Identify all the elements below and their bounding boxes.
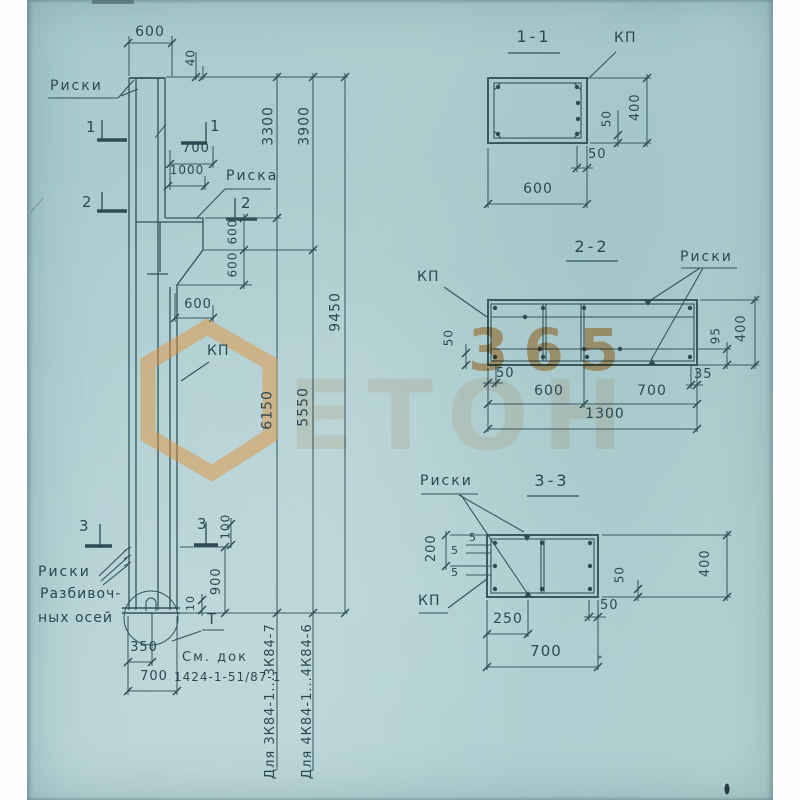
label-t-mark: Т [207, 611, 217, 628]
label-riska: Риска [226, 169, 278, 184]
dim-1-1-400: 400 [629, 95, 643, 121]
dim-900: 900 [210, 569, 224, 595]
section-marker-2-left: 2 [82, 194, 93, 211]
section-marker-3-right: 3 [197, 516, 208, 533]
section-3-3-drawing [419, 494, 731, 670]
dim-3-3-700: 700 [524, 643, 568, 660]
section-1-1-drawing [488, 52, 651, 208]
dim-2-2-50-bottom: 50 [496, 367, 515, 381]
dim-2-2-700: 700 [632, 384, 672, 399]
dim-9450: 9450 [328, 294, 343, 332]
dim-40: 40 [184, 48, 197, 68]
dim-2-2-400: 400 [735, 316, 749, 342]
dim-6150: 6150 [260, 394, 275, 430]
section-1-1-title: 1-1 [506, 28, 562, 46]
section-marker-1-left: 1 [86, 119, 97, 136]
dim-100: 100 [219, 516, 232, 540]
dim-2-2-50-left: 50 [442, 329, 455, 347]
dim-top-600: 600 [130, 25, 170, 40]
dim-1-1-50-bottom: 50 [588, 148, 607, 162]
dim-2-2-600: 600 [529, 384, 569, 399]
label-riski-2-2: Риски [680, 250, 733, 265]
note-for-3k84: Для 3К84-1...3К84-7 [264, 616, 278, 786]
dim-10: 10 [185, 595, 197, 611]
label-riski-top: Риски [50, 79, 103, 94]
dim-1-1-600: 600 [518, 182, 558, 197]
dim-350: 350 [126, 641, 162, 655]
dim-2-2-1300: 1300 [581, 407, 629, 422]
dim-corbel-600a: 600 [226, 219, 239, 245]
dim-1-1-50-inner: 50 [600, 110, 613, 128]
dim-700: 700 [176, 142, 216, 156]
label-kp-2-2: КП [417, 270, 439, 285]
dim-2-2-95: 95 [709, 327, 722, 345]
dim-3-3-5a: 5 [469, 532, 477, 544]
note-for-4k84: Для 4К84-1...4К84-6 [301, 616, 315, 786]
dim-3-3-50-right: 50 [613, 566, 626, 584]
dim-2-2-35: 35 [694, 368, 713, 382]
label-riski-3-3: Риски [420, 474, 473, 489]
blueprint-scan: ЕТОН 365 600 Риски 1 1 700 1000 Риска 2 … [0, 0, 800, 800]
dim-3-3-50-bottom: 50 [600, 599, 619, 613]
dim-corbel-600b: 600 [226, 252, 239, 278]
section-marker-3-left: 3 [79, 518, 90, 535]
label-kp-left: КП [207, 344, 229, 359]
dim-corbel-600-horizontal: 600 [180, 298, 216, 312]
dim-3-3-5c: 5 [451, 567, 459, 579]
dim-3-3-5b: 5 [451, 545, 459, 557]
dim-3-3-200: 200 [425, 536, 439, 562]
detail-circle [124, 591, 178, 645]
label-kp-1-1: КП [614, 31, 636, 46]
dim-3-3-400: 400 [699, 551, 713, 577]
section-marker-1-right: 1 [210, 118, 221, 135]
dim-bottom-700: 700 [132, 670, 176, 684]
dim-5550: 5550 [296, 391, 311, 427]
dim-3300: 3300 [261, 110, 276, 146]
label-kp-3-3: КП [418, 594, 440, 609]
dim-3900: 3900 [297, 110, 312, 146]
label-riski-axes-line3: ных осей [38, 611, 113, 626]
dim-1000: 1000 [166, 164, 208, 177]
section-marker-2-right: 2 [241, 195, 252, 212]
label-riski-axes-line1: Риски [38, 565, 91, 580]
dim-3-3-250: 250 [489, 612, 527, 627]
label-riski-axes-line2: Разбивоч- [40, 587, 121, 602]
drawing-linework [0, 0, 800, 800]
section-3-3-title: 3-3 [523, 472, 581, 490]
label-doc-note-line1: См. док [182, 651, 248, 665]
section-2-2-title: 2-2 [564, 238, 620, 256]
